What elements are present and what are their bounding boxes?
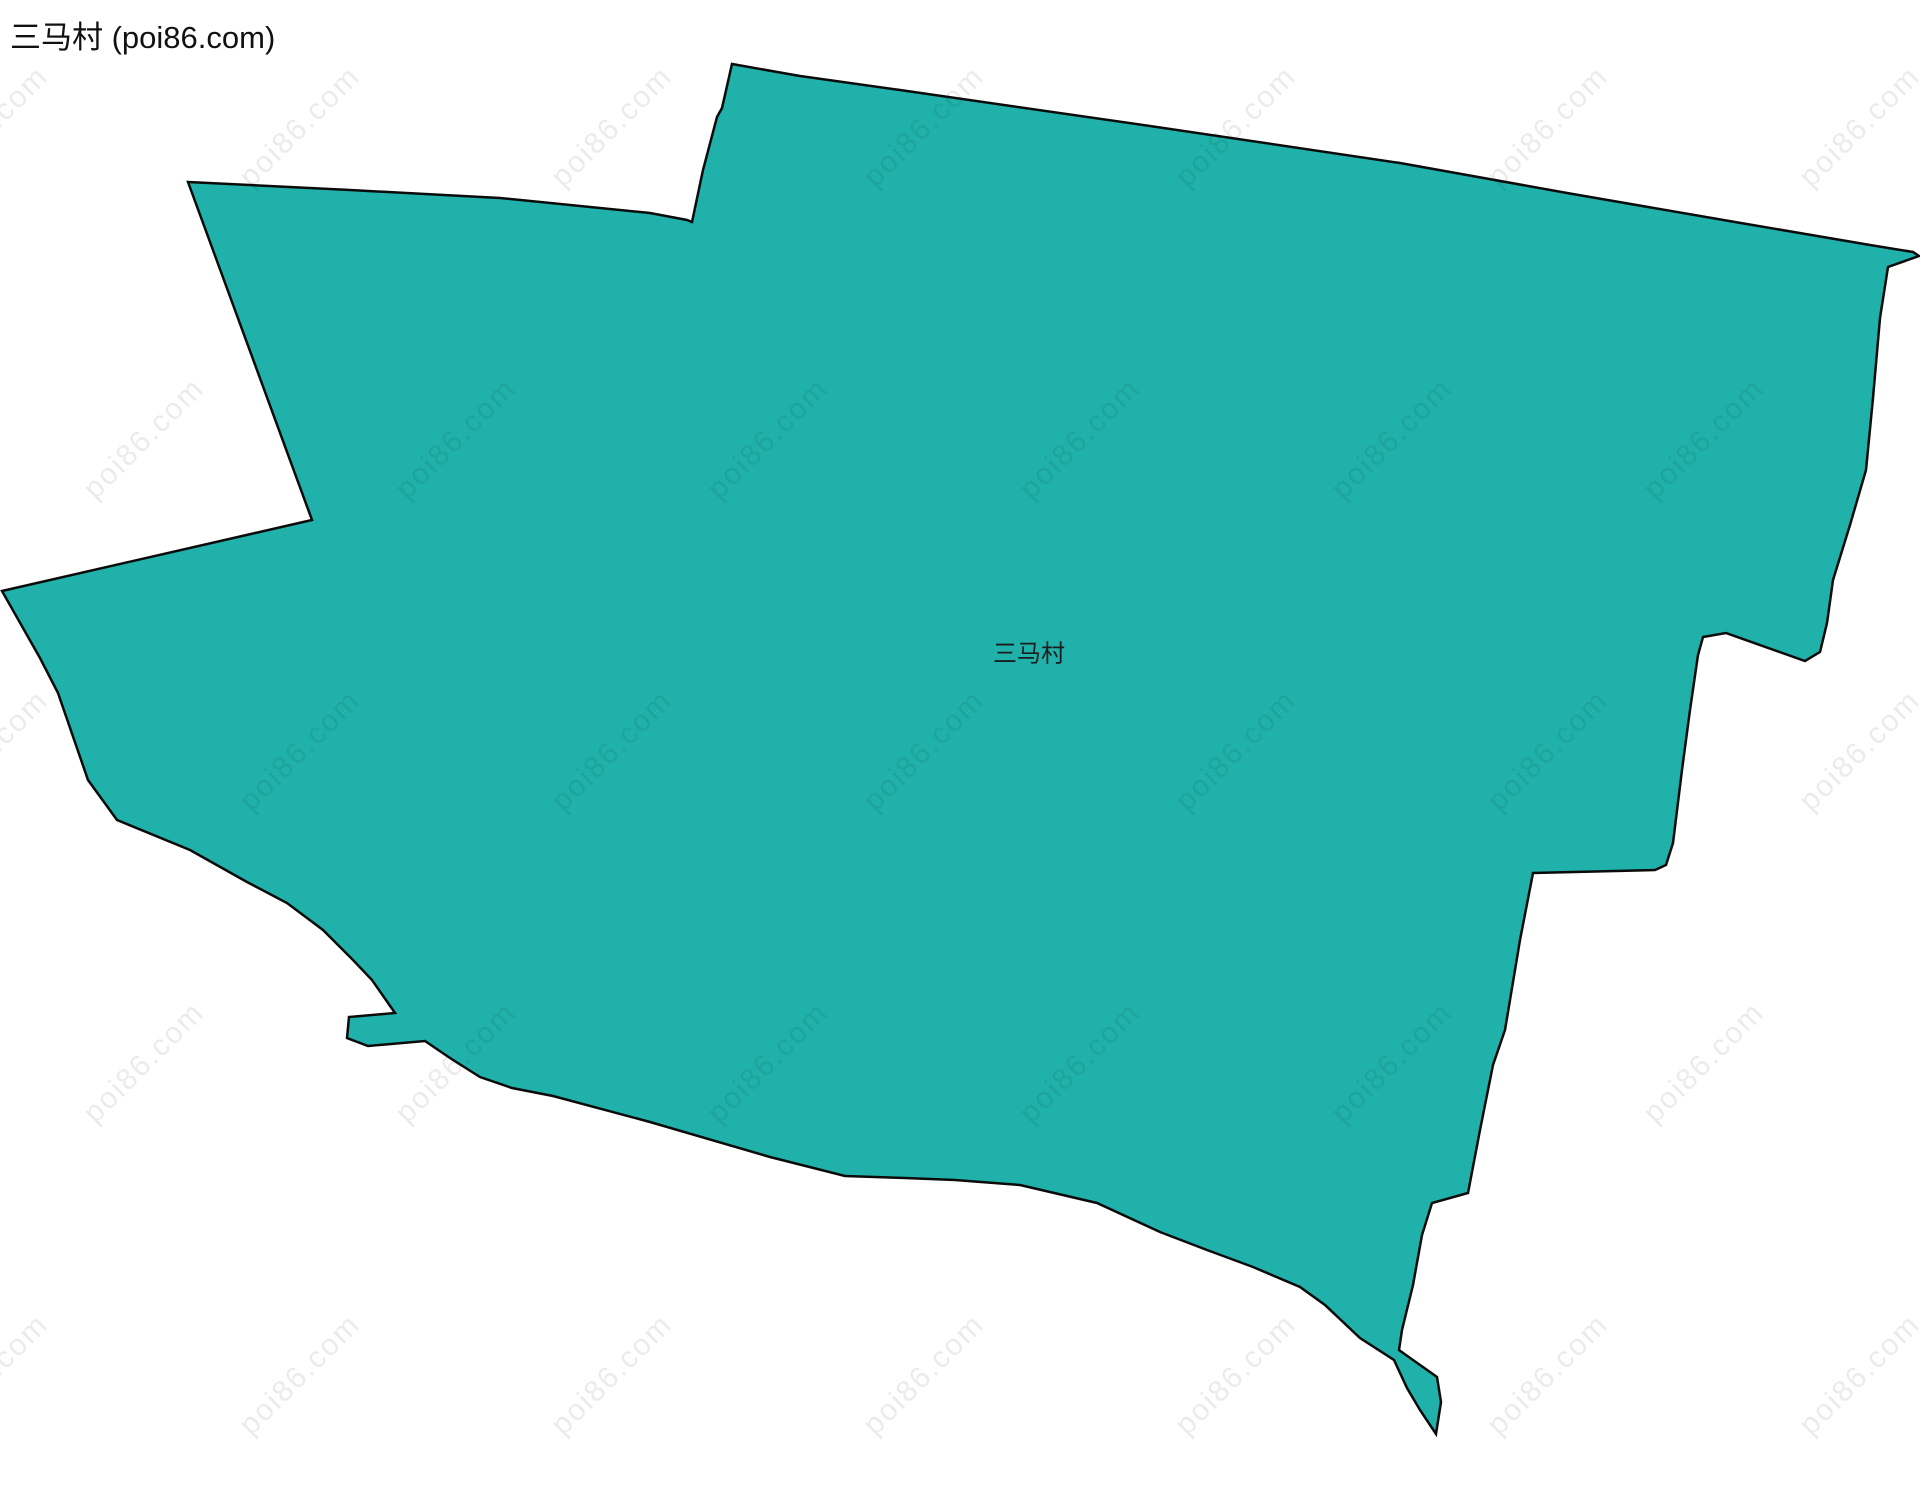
map-canvas: poi86.compoi86.compoi86.compoi86.compoi8…: [0, 0, 1920, 1498]
village-boundary-polygon: [2, 64, 1919, 1434]
page-title: 三马村 (poi86.com): [10, 12, 275, 57]
village-boundary-map: [0, 0, 1920, 1498]
village-name-label: 三马村: [993, 634, 1065, 669]
